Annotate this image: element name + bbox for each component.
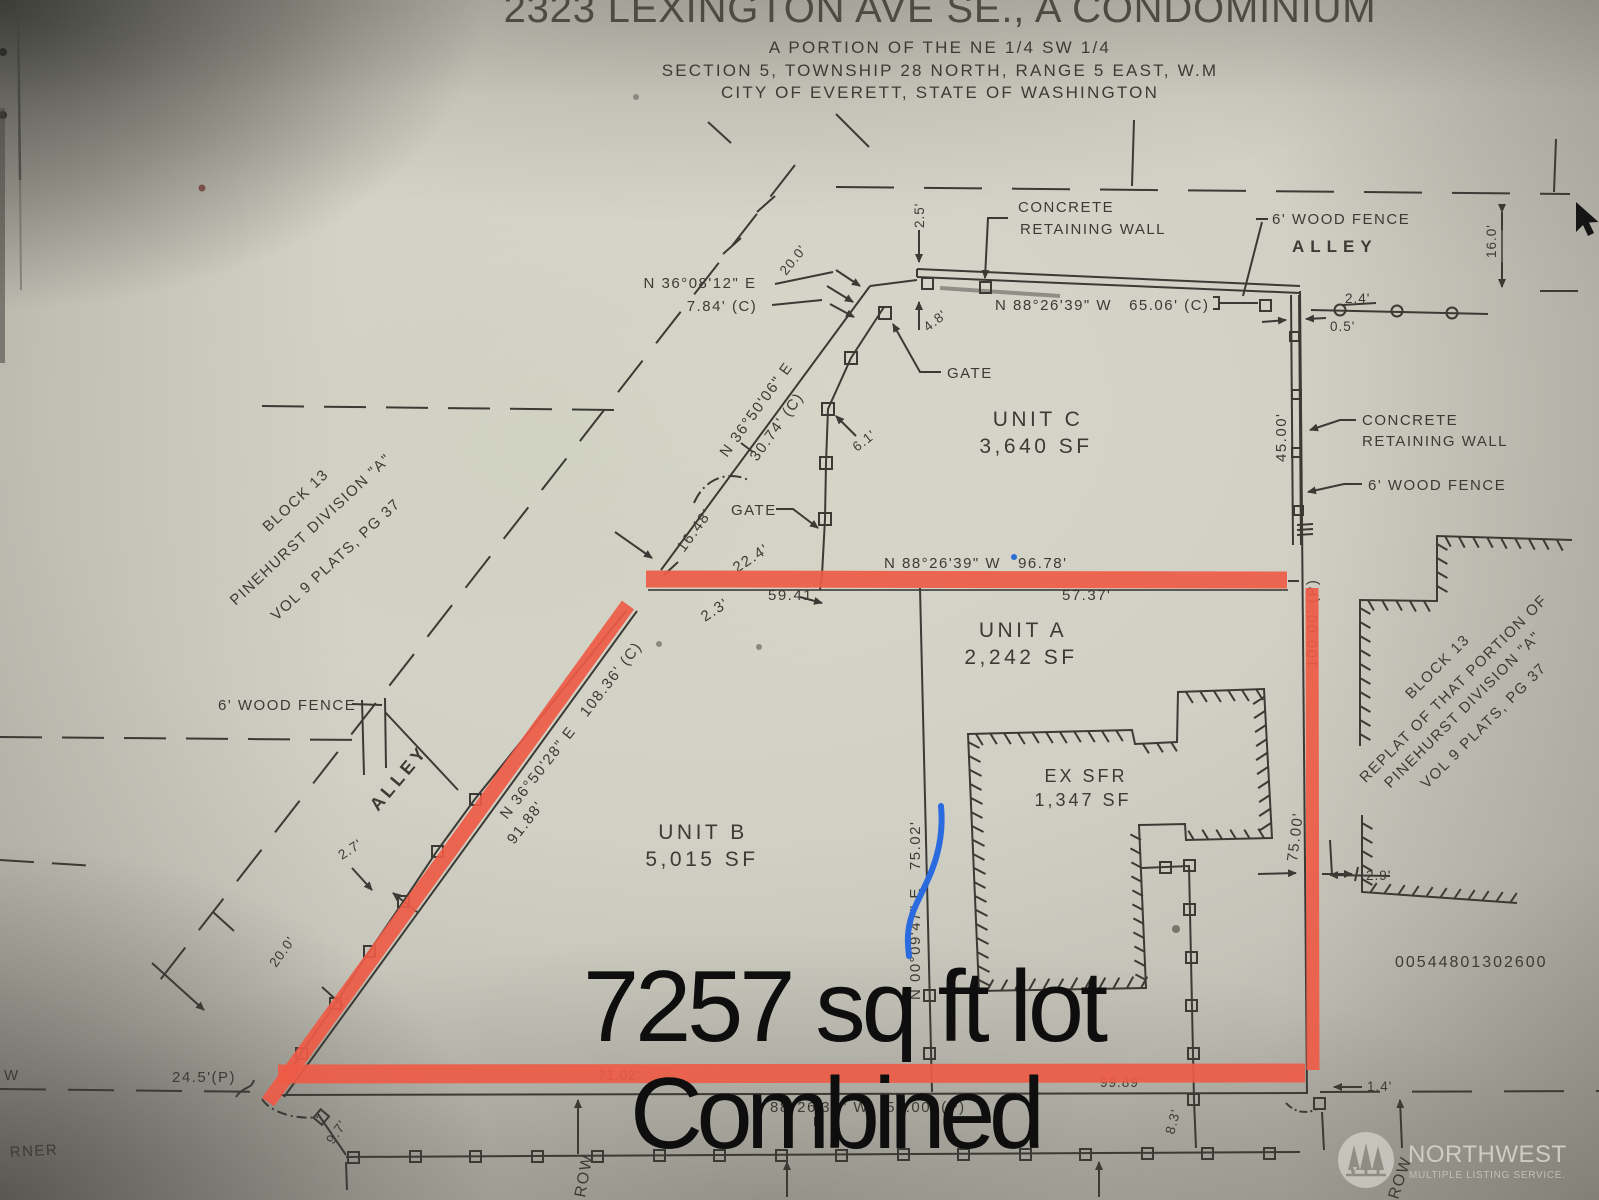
svg-text:Combined: Combined [630, 1058, 1043, 1170]
svg-text:7257 sq ft lot: 7257 sq ft lot [583, 951, 1108, 1063]
svg-text:2.3': 2.3' [698, 595, 732, 625]
svg-text:SECTION 5, TOWNSHIP 28 NORTH,: SECTION 5, TOWNSHIP 28 NORTH, RANGE 5 EA… [662, 61, 1219, 80]
svg-text:UNIT C: UNIT C [993, 408, 1084, 431]
svg-text:6' WOOD FENCE: 6' WOOD FENCE [218, 697, 356, 714]
svg-text:75.00': 75.00' [1284, 811, 1307, 862]
svg-text:N 88°26'39" W 96.78': N 88°26'39" W 96.78' [884, 555, 1067, 572]
svg-text:6.1': 6.1' [850, 427, 879, 454]
svg-text:RNER: RNER [9, 1141, 58, 1161]
svg-text:ROW: ROW [572, 1153, 596, 1199]
svg-text:GATE: GATE [731, 502, 777, 519]
svg-text:NORTHWEST: NORTHWEST [1408, 1141, 1567, 1168]
svg-text:1,347 SF: 1,347 SF [1034, 790, 1131, 810]
svg-text:N 88°26'39" W 65.06' (C): N 88°26'39" W 65.06' (C) [995, 297, 1209, 314]
svg-text:MULTIPLE LISTING SERVICE.: MULTIPLE LISTING SERVICE. [1409, 1170, 1566, 1181]
svg-text:4.8': 4.8' [921, 307, 950, 334]
svg-text:2.7': 2.7' [335, 836, 364, 862]
svg-text:GATE: GATE [947, 365, 993, 382]
svg-text:20.0': 20.0' [777, 242, 810, 278]
svg-text:RETAINING WALL: RETAINING WALL [1362, 433, 1508, 450]
svg-text:8.3': 8.3' [1162, 1107, 1183, 1135]
svg-text:5,015 SF: 5,015 SF [645, 848, 758, 871]
svg-text:16.0': 16.0' [1484, 224, 1499, 258]
svg-text:RETAINING WALL: RETAINING WALL [1020, 221, 1166, 238]
svg-text:0.5': 0.5' [1330, 319, 1355, 334]
svg-text:N 36°08'12" E: N 36°08'12" E [644, 275, 757, 292]
svg-text:6' WOOD FENCE: 6' WOOD FENCE [1272, 211, 1410, 228]
svg-text:2323 LEXINGTON AVE SE., A COND: 2323 LEXINGTON AVE SE., A CONDOMINIUM [504, 0, 1377, 31]
svg-text:9.7': 9.7' [323, 1117, 350, 1146]
svg-text:UNIT B: UNIT B [658, 821, 747, 844]
svg-text:45.00': 45.00' [1273, 413, 1290, 462]
svg-text:00544801302600: 00544801302600 [1395, 954, 1548, 971]
svg-text:CONCRETE: CONCRETE [1018, 199, 1114, 216]
svg-text:24.5'(P): 24.5'(P) [172, 1069, 236, 1086]
svg-text:3,640 SF: 3,640 SF [979, 435, 1092, 458]
svg-text:CONCRETE: CONCRETE [1362, 412, 1458, 429]
svg-text:EX SFR: EX SFR [1044, 766, 1127, 786]
svg-text:CITY OF EVERETT, STATE OF WASH: CITY OF EVERETT, STATE OF WASHINGTON [721, 83, 1159, 102]
svg-text:UNIT A: UNIT A [979, 619, 1067, 642]
svg-text:1.4': 1.4' [1367, 1079, 1392, 1094]
svg-text:W: W [4, 1067, 20, 1084]
svg-text:2.5': 2.5' [912, 203, 927, 228]
svg-text:20.0': 20.0' [266, 934, 298, 970]
svg-text:2,242 SF: 2,242 SF [964, 646, 1077, 669]
svg-text:ALLEY: ALLEY [1292, 237, 1378, 256]
svg-text:6' WOOD FENCE: 6' WOOD FENCE [1368, 477, 1506, 494]
svg-text:7.84' (C): 7.84' (C) [687, 298, 758, 315]
svg-text:A PORTION OF THE NE 1/4 SW 1/4: A PORTION OF THE NE 1/4 SW 1/4 [769, 38, 1111, 57]
svg-text:N 36°50'28" E 108.36' (C): N 36°50'28" E 108.36' (C) [497, 639, 646, 823]
svg-text:16.48': 16.48' [673, 505, 716, 555]
